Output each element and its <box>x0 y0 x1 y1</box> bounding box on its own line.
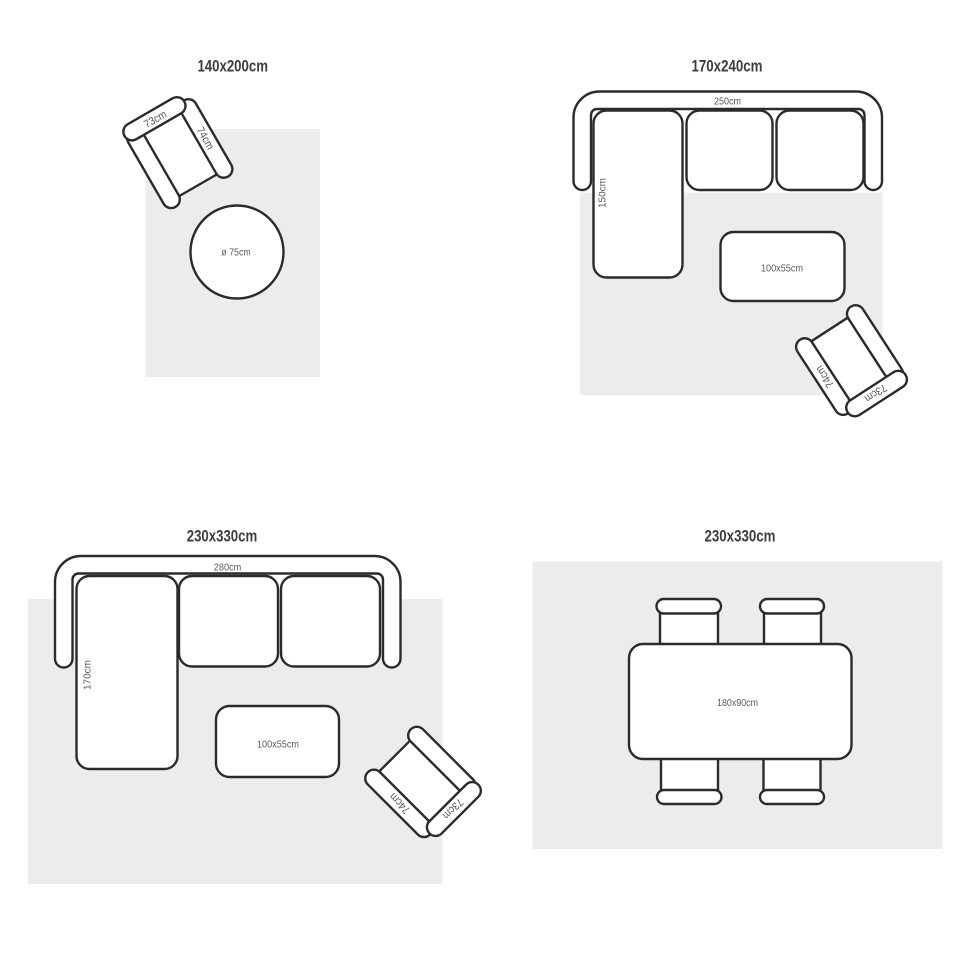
svg-text:140x200cm: 140x200cm <box>197 57 268 76</box>
svg-text:100x55cm: 100x55cm <box>761 263 803 275</box>
svg-text:280cm: 280cm <box>214 562 242 574</box>
svg-text:230x330cm: 230x330cm <box>187 527 258 546</box>
svg-text:230x330cm: 230x330cm <box>705 527 776 546</box>
svg-text:170x240cm: 170x240cm <box>692 57 763 76</box>
svg-text:180x90cm: 180x90cm <box>717 697 758 709</box>
svg-text:170cm: 170cm <box>82 660 94 690</box>
svg-text:250cm: 250cm <box>714 96 741 108</box>
svg-text:ø 75cm: ø 75cm <box>221 247 251 259</box>
svg-text:100x55cm: 100x55cm <box>257 739 299 751</box>
svg-text:150cm: 150cm <box>597 178 609 208</box>
